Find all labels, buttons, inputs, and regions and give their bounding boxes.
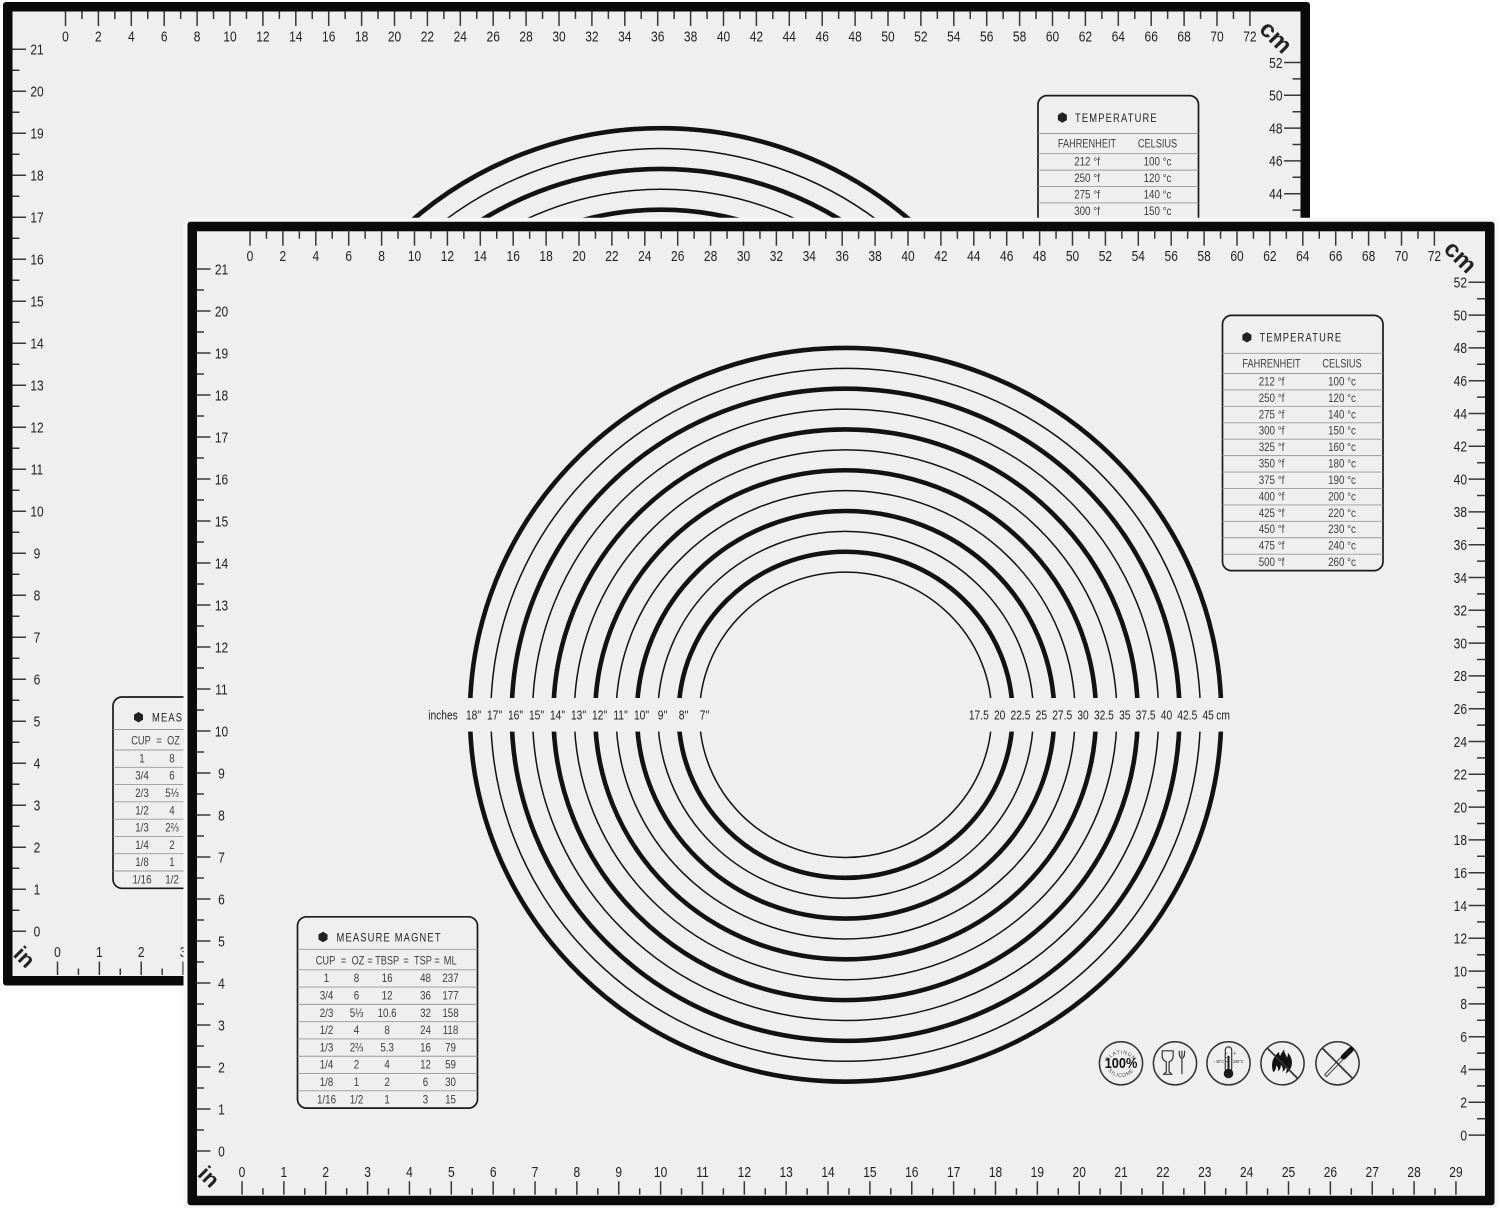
svg-text:13: 13 (215, 597, 228, 614)
svg-text:34: 34 (1454, 570, 1468, 587)
svg-text:48: 48 (1033, 248, 1046, 265)
svg-text:CELSIUS: CELSIUS (1138, 139, 1177, 151)
svg-text:6: 6 (1460, 1029, 1467, 1046)
svg-text:12: 12 (256, 28, 269, 45)
svg-text:1: 1 (218, 1101, 225, 1118)
svg-text:120 °c: 120 °c (1328, 392, 1356, 405)
svg-text:72: 72 (1243, 28, 1256, 45)
svg-text:FAHRENHEIT: FAHRENHEIT (1242, 359, 1301, 371)
svg-text:6: 6 (345, 248, 352, 265)
svg-text:3: 3 (218, 1017, 225, 1034)
svg-text:30: 30 (552, 28, 566, 45)
svg-text:1: 1 (281, 1164, 288, 1181)
svg-text:32: 32 (1454, 602, 1467, 619)
svg-text:3: 3 (423, 1094, 428, 1107)
svg-text:220 °c: 220 °c (1328, 507, 1356, 520)
svg-text:66: 66 (1145, 28, 1158, 45)
svg-text:12: 12 (441, 248, 454, 265)
svg-text:1/16: 1/16 (132, 874, 151, 887)
svg-text:20: 20 (1073, 1164, 1087, 1181)
svg-text:32: 32 (770, 248, 783, 265)
svg-text:46: 46 (1269, 153, 1282, 170)
svg-text:36: 36 (420, 990, 431, 1003)
svg-text:17: 17 (947, 1164, 960, 1181)
svg-text:50: 50 (1269, 87, 1283, 104)
svg-text:8: 8 (384, 1024, 389, 1037)
svg-text:12: 12 (738, 1164, 751, 1181)
svg-text:20: 20 (994, 709, 1005, 722)
svg-text:34: 34 (803, 248, 817, 265)
svg-text:20: 20 (215, 303, 229, 320)
svg-text:14'': 14'' (550, 709, 565, 722)
svg-text:150 °c: 150 °c (1144, 205, 1172, 218)
svg-text:TEMPERATURE: TEMPERATURE (1075, 112, 1158, 125)
svg-text:4: 4 (312, 248, 319, 265)
svg-text:4: 4 (128, 28, 135, 45)
svg-text:6: 6 (354, 990, 359, 1003)
svg-text:12: 12 (420, 1059, 431, 1072)
svg-text:14: 14 (474, 248, 488, 265)
svg-text:44: 44 (967, 248, 981, 265)
svg-text:1: 1 (34, 881, 41, 898)
svg-text:180 °c: 180 °c (1328, 458, 1356, 471)
svg-text:8: 8 (378, 248, 385, 265)
svg-text:12'': 12'' (592, 709, 607, 722)
svg-text:24: 24 (454, 28, 468, 45)
svg-text:0: 0 (34, 923, 41, 940)
svg-text:425 °f: 425 °f (1259, 507, 1285, 520)
svg-text:70: 70 (1395, 248, 1409, 265)
svg-text:260 °c: 260 °c (1328, 556, 1356, 569)
svg-text:2: 2 (138, 944, 145, 961)
svg-text:6: 6 (169, 770, 174, 783)
svg-text:9: 9 (34, 545, 41, 562)
svg-text:60: 60 (1230, 248, 1244, 265)
svg-text:12: 12 (30, 419, 43, 436)
svg-text:- 40°C: - 40°C (1213, 1058, 1224, 1063)
svg-text:25: 25 (1282, 1164, 1295, 1181)
svg-text:300 °f: 300 °f (1259, 425, 1285, 438)
svg-text:1/4: 1/4 (135, 839, 149, 852)
svg-text:CUP: CUP (131, 736, 150, 748)
svg-text:38: 38 (1454, 504, 1467, 521)
svg-text:38: 38 (684, 28, 697, 45)
svg-text:177: 177 (442, 990, 458, 1003)
svg-text:2/3: 2/3 (320, 1007, 334, 1020)
svg-text:2: 2 (95, 28, 102, 45)
svg-text:2: 2 (280, 248, 287, 265)
svg-text:21: 21 (1114, 1164, 1127, 1181)
svg-text:20: 20 (388, 28, 402, 45)
svg-text:18: 18 (539, 248, 552, 265)
svg-text:16: 16 (905, 1164, 918, 1181)
svg-text:15: 15 (445, 1094, 456, 1107)
svg-text:TEMPERATURE: TEMPERATURE (1260, 332, 1343, 345)
svg-text:56: 56 (1165, 248, 1178, 265)
svg-text:237: 237 (442, 973, 458, 986)
svg-text:59: 59 (445, 1059, 456, 1072)
svg-text:14: 14 (821, 1164, 835, 1181)
svg-text:22.5: 22.5 (1011, 709, 1031, 722)
svg-text:8: 8 (169, 753, 174, 766)
svg-text:7: 7 (532, 1164, 539, 1181)
svg-text:50: 50 (1454, 307, 1468, 324)
svg-text:15: 15 (863, 1164, 876, 1181)
svg-text:12: 12 (215, 639, 228, 656)
svg-text:TSP: TSP (414, 955, 432, 967)
svg-text:13: 13 (30, 377, 43, 394)
svg-text:3: 3 (364, 1164, 371, 1181)
svg-text:1: 1 (384, 1094, 389, 1107)
svg-text:9: 9 (615, 1164, 622, 1181)
svg-text:1/2: 1/2 (320, 1024, 334, 1037)
svg-text:16: 16 (382, 973, 393, 986)
svg-text:48: 48 (848, 28, 861, 45)
svg-text:36: 36 (651, 28, 664, 45)
svg-text:8: 8 (34, 587, 41, 604)
svg-text:TBSP: TBSP (375, 955, 399, 967)
svg-text:27: 27 (1366, 1164, 1379, 1181)
svg-text:68: 68 (1177, 28, 1190, 45)
svg-text:42.5: 42.5 (1177, 709, 1197, 722)
svg-text:72: 72 (1428, 248, 1441, 265)
svg-text:140 °c: 140 °c (1144, 189, 1172, 202)
svg-text:10.6: 10.6 (378, 1007, 397, 1020)
svg-text:18: 18 (989, 1164, 1002, 1181)
svg-text:22: 22 (1156, 1164, 1169, 1181)
svg-text:10: 10 (1454, 963, 1468, 980)
svg-text:15'': 15'' (529, 709, 544, 722)
svg-text:6: 6 (490, 1164, 497, 1181)
svg-text:6: 6 (34, 671, 41, 688)
svg-text:58: 58 (1197, 248, 1210, 265)
svg-text:29: 29 (1449, 1164, 1462, 1181)
svg-text:58: 58 (1013, 28, 1026, 45)
svg-text:12: 12 (1454, 930, 1467, 947)
svg-text:40: 40 (1454, 471, 1468, 488)
svg-text:19: 19 (215, 345, 228, 362)
svg-text:2: 2 (218, 1059, 225, 1076)
svg-text:0: 0 (54, 944, 61, 961)
svg-text:11: 11 (696, 1164, 708, 1181)
svg-text:325 °f: 325 °f (1259, 441, 1285, 454)
svg-text:14: 14 (215, 555, 229, 572)
svg-text:56: 56 (980, 28, 993, 45)
svg-text:1: 1 (354, 1076, 359, 1089)
svg-text:400 °f: 400 °f (1259, 491, 1285, 504)
svg-text:4: 4 (169, 805, 174, 818)
svg-text:44: 44 (1269, 186, 1283, 203)
svg-text:42: 42 (750, 28, 763, 45)
svg-text:100 °c: 100 °c (1328, 376, 1356, 389)
svg-text:cm: cm (1216, 709, 1230, 722)
svg-text:20: 20 (1454, 799, 1468, 816)
svg-text:28: 28 (704, 248, 717, 265)
svg-text:13'': 13'' (571, 709, 586, 722)
svg-text:150 °c: 150 °c (1328, 425, 1356, 438)
svg-text:FAHRENHEIT: FAHRENHEIT (1058, 139, 1117, 151)
svg-text:8: 8 (1460, 996, 1467, 1013)
svg-text:10'': 10'' (634, 709, 649, 722)
svg-text:2: 2 (384, 1076, 389, 1089)
svg-text:3/4: 3/4 (135, 770, 149, 783)
svg-text:24: 24 (420, 1024, 431, 1037)
svg-text:70: 70 (1210, 28, 1224, 45)
svg-text:=: = (341, 955, 346, 967)
svg-text:158: 158 (442, 1007, 458, 1020)
svg-text:3/4: 3/4 (320, 990, 334, 1003)
svg-text:inches: inches (428, 709, 458, 722)
svg-text:10: 10 (223, 28, 237, 45)
svg-text:4: 4 (384, 1059, 389, 1072)
svg-text:375 °f: 375 °f (1259, 474, 1285, 487)
svg-text:212 °f: 212 °f (1074, 156, 1100, 169)
svg-text:230 °c: 230 °c (1328, 524, 1356, 537)
svg-text:5⅓: 5⅓ (350, 1007, 364, 1020)
svg-text:1: 1 (96, 944, 103, 961)
svg-text:1: 1 (139, 753, 144, 766)
svg-text:2: 2 (34, 839, 41, 856)
svg-text:79: 79 (445, 1042, 456, 1055)
svg-text:3: 3 (34, 797, 41, 814)
svg-text:26: 26 (671, 248, 684, 265)
svg-text:42: 42 (1454, 438, 1467, 455)
svg-text:4: 4 (354, 1024, 359, 1037)
svg-text:8: 8 (218, 807, 225, 824)
svg-text:46: 46 (1000, 248, 1013, 265)
svg-text:23: 23 (1198, 1164, 1211, 1181)
svg-text:26: 26 (487, 28, 500, 45)
svg-text:1/4: 1/4 (320, 1059, 334, 1072)
svg-text:27.5: 27.5 (1052, 709, 1072, 722)
svg-text:1/8: 1/8 (135, 856, 149, 869)
svg-text:14: 14 (289, 28, 303, 45)
svg-text:21: 21 (30, 41, 43, 58)
svg-text:5: 5 (218, 933, 225, 950)
svg-text:48: 48 (420, 973, 431, 986)
svg-text:100 °c: 100 °c (1144, 156, 1172, 169)
svg-text:50: 50 (881, 28, 895, 45)
svg-text:8: 8 (194, 28, 201, 45)
svg-text:6: 6 (161, 28, 168, 45)
svg-text:1/3: 1/3 (135, 822, 149, 835)
svg-text:18: 18 (355, 28, 368, 45)
svg-text:230°C: 230°C (1233, 1058, 1243, 1063)
svg-text:250 °f: 250 °f (1074, 172, 1100, 185)
svg-text:4: 4 (1460, 1062, 1467, 1079)
svg-text:5.3: 5.3 (380, 1042, 394, 1055)
svg-text:9: 9 (218, 765, 225, 782)
svg-text:0: 0 (218, 1143, 225, 1160)
svg-text:32.5: 32.5 (1094, 709, 1114, 722)
svg-text:64: 64 (1112, 28, 1126, 45)
svg-text:42: 42 (934, 248, 947, 265)
svg-text:1: 1 (169, 856, 174, 869)
svg-text:18: 18 (215, 387, 228, 404)
svg-text:44: 44 (783, 28, 797, 45)
svg-text:0: 0 (247, 248, 254, 265)
svg-text:1/2: 1/2 (135, 805, 149, 818)
svg-text:6: 6 (423, 1076, 428, 1089)
svg-text:19: 19 (1031, 1164, 1044, 1181)
svg-text:16: 16 (30, 251, 43, 268)
svg-text:18'': 18'' (466, 709, 481, 722)
svg-text:20: 20 (572, 248, 586, 265)
svg-text:21: 21 (215, 261, 228, 278)
svg-text:28: 28 (519, 28, 532, 45)
svg-text:40: 40 (1161, 709, 1172, 722)
svg-text:46: 46 (1454, 373, 1467, 390)
svg-text:16: 16 (322, 28, 335, 45)
svg-text:2⅔: 2⅔ (350, 1042, 364, 1055)
svg-text:52: 52 (1099, 248, 1112, 265)
svg-text:11: 11 (31, 461, 43, 478)
svg-text:26: 26 (1324, 1164, 1337, 1181)
svg-text:1/3: 1/3 (320, 1042, 334, 1055)
svg-text:0: 0 (62, 28, 69, 45)
svg-text:160 °c: 160 °c (1328, 441, 1356, 454)
svg-text:24: 24 (1240, 1164, 1254, 1181)
svg-text:7: 7 (34, 629, 41, 646)
svg-text:50: 50 (1066, 248, 1080, 265)
svg-text:6: 6 (218, 891, 225, 908)
svg-text:24: 24 (1454, 734, 1468, 751)
svg-text:118: 118 (443, 1024, 459, 1037)
svg-text:240 °c: 240 °c (1328, 540, 1356, 553)
svg-text:=: = (156, 736, 161, 748)
svg-text:68: 68 (1362, 248, 1375, 265)
svg-text:5⅓: 5⅓ (165, 787, 179, 800)
svg-text:16: 16 (420, 1042, 431, 1055)
svg-text:15: 15 (215, 513, 228, 530)
svg-text:16: 16 (507, 248, 520, 265)
svg-text:19: 19 (30, 125, 43, 142)
svg-text:60: 60 (1046, 28, 1060, 45)
svg-text:1/8: 1/8 (320, 1076, 334, 1089)
svg-text:2: 2 (1460, 1094, 1467, 1111)
svg-text:2/3: 2/3 (135, 787, 149, 800)
svg-text:190 °c: 190 °c (1328, 474, 1356, 487)
svg-text:10: 10 (654, 1164, 668, 1181)
svg-text:200 °c: 200 °c (1328, 491, 1356, 504)
svg-text:64: 64 (1296, 248, 1310, 265)
svg-text:44: 44 (1454, 406, 1468, 423)
svg-text:52: 52 (914, 28, 927, 45)
svg-text:4: 4 (218, 975, 225, 992)
svg-text:350 °f: 350 °f (1259, 458, 1285, 471)
svg-text:46: 46 (816, 28, 829, 45)
svg-text:14: 14 (30, 335, 44, 352)
svg-text:28: 28 (1454, 668, 1467, 685)
svg-text:CUP: CUP (316, 955, 335, 967)
svg-text:12: 12 (382, 990, 393, 1003)
svg-text:275 °f: 275 °f (1259, 409, 1285, 422)
svg-text:18: 18 (1454, 832, 1467, 849)
svg-text:24: 24 (638, 248, 652, 265)
svg-text:=: = (434, 955, 439, 967)
svg-text:0: 0 (239, 1164, 246, 1181)
svg-text:22: 22 (605, 248, 618, 265)
svg-text:17'': 17'' (487, 709, 502, 722)
svg-text:15: 15 (30, 293, 43, 310)
svg-text:2⅔: 2⅔ (165, 822, 179, 835)
svg-text:52: 52 (1269, 55, 1282, 72)
svg-text:66: 66 (1329, 248, 1342, 265)
svg-text:475 °f: 475 °f (1259, 540, 1285, 553)
svg-text:17: 17 (215, 429, 228, 446)
svg-text:300 °f: 300 °f (1074, 205, 1100, 218)
svg-text:25: 25 (1036, 709, 1047, 722)
svg-text:30: 30 (1077, 709, 1088, 722)
svg-text:22: 22 (421, 28, 434, 45)
svg-text:36: 36 (1454, 537, 1467, 554)
svg-text:2: 2 (354, 1059, 359, 1072)
svg-text:37.5: 37.5 (1136, 709, 1156, 722)
svg-text:30: 30 (1454, 635, 1468, 652)
svg-text:450 °f: 450 °f (1259, 524, 1285, 537)
svg-text:CELSIUS: CELSIUS (1322, 359, 1361, 371)
svg-text:500 °f: 500 °f (1259, 556, 1285, 569)
svg-text:100%: 100% (1105, 1054, 1138, 1071)
svg-text:4: 4 (406, 1164, 413, 1181)
svg-text:45: 45 (1202, 709, 1213, 722)
svg-text:OZ: OZ (352, 955, 365, 967)
svg-text:5: 5 (448, 1164, 455, 1181)
svg-text:28: 28 (1407, 1164, 1420, 1181)
svg-text:62: 62 (1263, 248, 1276, 265)
svg-text:26: 26 (1454, 701, 1467, 718)
svg-text:30: 30 (737, 248, 751, 265)
svg-text:17.5: 17.5 (969, 709, 989, 722)
svg-text:8: 8 (354, 973, 359, 986)
svg-text:=: = (367, 955, 372, 967)
svg-text:10: 10 (408, 248, 422, 265)
svg-text:54: 54 (1132, 248, 1146, 265)
svg-text:38: 38 (868, 248, 881, 265)
svg-text:18: 18 (30, 167, 43, 184)
svg-text:17: 17 (30, 209, 43, 226)
svg-text:ML: ML (444, 955, 457, 967)
svg-text:140 °c: 140 °c (1328, 409, 1356, 422)
svg-text:10: 10 (215, 723, 229, 740)
svg-text:+: + (1234, 1050, 1237, 1056)
svg-text:22: 22 (1454, 766, 1467, 783)
svg-text:2: 2 (169, 839, 174, 852)
svg-text:16'': 16'' (508, 709, 523, 722)
svg-text:48: 48 (1454, 340, 1467, 357)
svg-text:4: 4 (34, 755, 41, 772)
svg-text:16: 16 (1454, 865, 1467, 882)
svg-text:35: 35 (1119, 709, 1130, 722)
svg-text:13: 13 (780, 1164, 793, 1181)
svg-text:275 °f: 275 °f (1074, 189, 1100, 202)
svg-text:=: = (403, 955, 408, 967)
svg-text:20: 20 (30, 83, 44, 100)
svg-text:OZ: OZ (167, 736, 180, 748)
svg-text:1/16: 1/16 (317, 1094, 336, 1107)
svg-text:1/2: 1/2 (165, 874, 179, 887)
svg-text:10: 10 (30, 503, 44, 520)
svg-text:36: 36 (836, 248, 849, 265)
svg-text:7: 7 (218, 849, 225, 866)
svg-text:30: 30 (445, 1076, 456, 1089)
svg-text:7'': 7'' (700, 709, 710, 722)
svg-text:9'': 9'' (658, 709, 668, 722)
svg-text:32: 32 (585, 28, 598, 45)
svg-text:250 °f: 250 °f (1259, 392, 1285, 405)
svg-text:11: 11 (215, 681, 227, 698)
svg-text:1: 1 (324, 973, 329, 986)
